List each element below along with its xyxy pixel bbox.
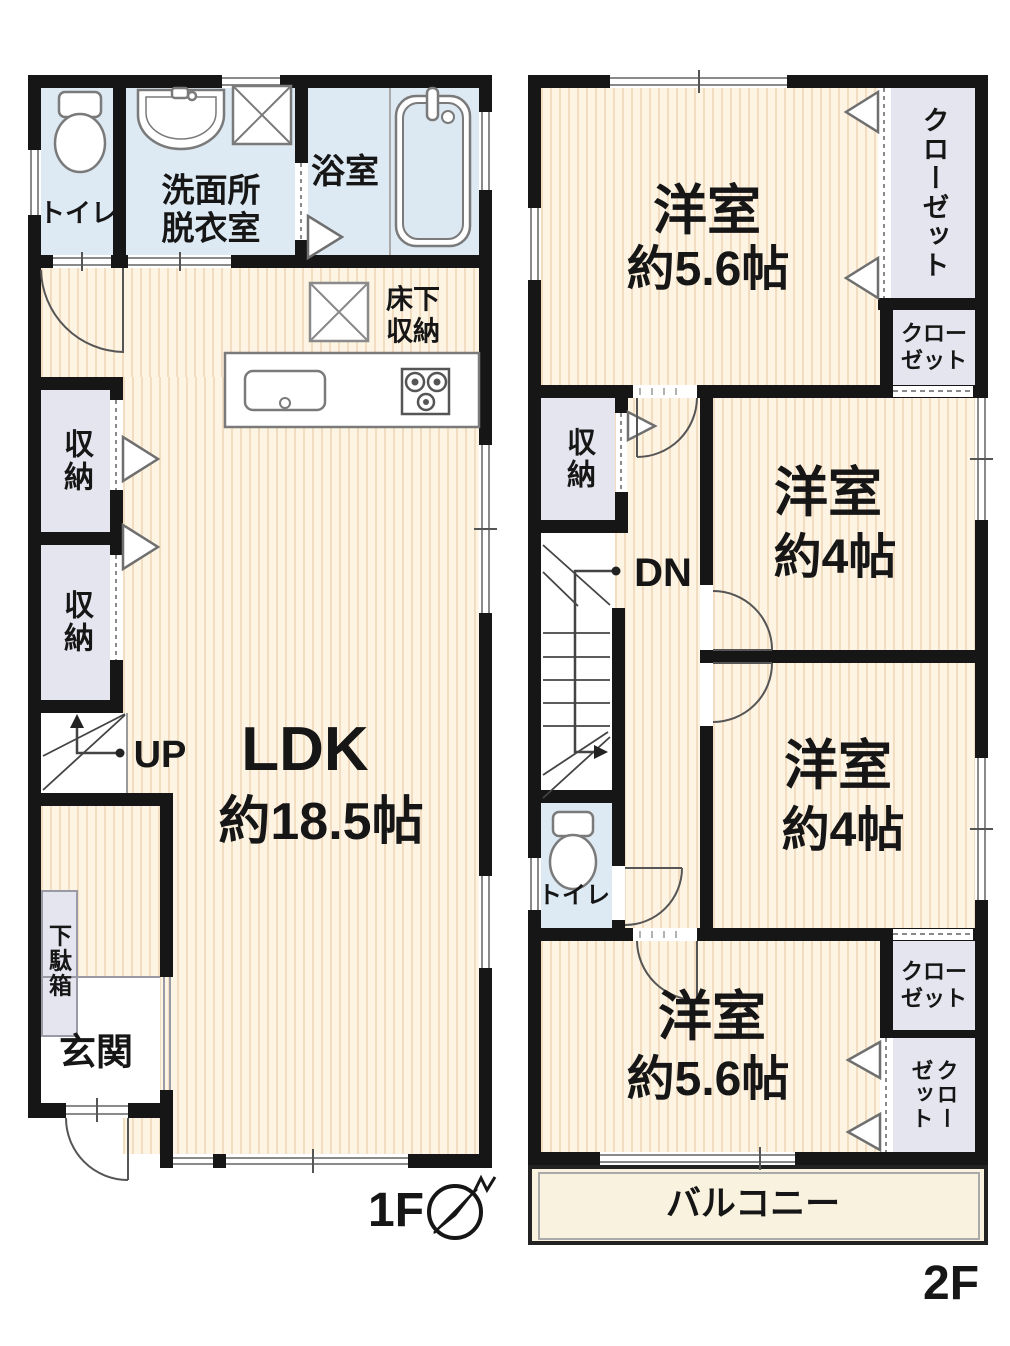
label-1f-ldk1: LDK [241,719,368,781]
label-1f-washroom1: 洗面所 [162,174,261,207]
label-2f-room-top1: 洋室 [653,184,761,238]
window-1f-ldk-right-lower [479,876,492,968]
label-1f-up: UP [134,736,187,774]
closet-door-2f-bot-small [893,929,973,940]
label-2f-room-bottom1: 洋室 [658,990,766,1044]
label-2f-room-bottom2: 約5.6帖 [627,1056,790,1104]
label-2f-closet-vert-col2: ゼット [910,1059,932,1131]
label-2f-closet-top-b: ゼット [901,350,967,372]
label-2f-closet-vert-col1: クロー [935,1059,957,1131]
label-2f-closet-vert: クロー ゼット [910,1059,957,1131]
closet-door-2f-top-small [893,386,973,397]
entrance-door-icon [66,1098,128,1180]
label-2f-dn: DN [634,553,692,593]
label-1f-bath: 浴室 [311,155,379,189]
room-1f-stairs [41,713,127,793]
label-1f-toilet: トイレ [39,200,117,226]
label-2f-room-mid2a: 洋室 [784,739,892,793]
compass-icon [429,1177,495,1238]
label-2f-storage: 収納 [564,427,593,491]
label-1f-underfloor2: 収納 [386,319,440,346]
label-1f-underfloor1: 床下 [386,287,440,314]
window-1f-bottom-small [173,1154,213,1168]
window-1f-top [222,75,280,88]
label-1f-ldk2: 約18.5帖 [218,796,423,848]
label-2f-closet-tall: クローゼット [920,106,947,280]
window-2f-left-top [528,208,541,280]
label-2f-room-mid1a: 洋室 [774,466,882,520]
label-2f-room-mid1b: 約4帖 [774,534,897,582]
label-2f-room-mid2b: 約4帖 [782,807,905,855]
room-2f-hall [615,398,700,928]
label-1f-storage2: 収納 [60,589,90,655]
label-2f-closet-top-a: クロー [901,323,967,345]
label-1f-shoebox: 下駄箱 [47,924,70,999]
room-1f-toilet [41,88,113,255]
floorplan-canvas: トイレ 洗面所 脱衣室 浴室 床下 収納 収納 収納 UP LDK 約18.5帖… [0,0,1010,1346]
label-1f-washroom2: 脱衣室 [162,212,261,245]
room-2f-stairs [541,533,612,790]
label-2f-room-top2: 約5.6帖 [627,246,790,294]
room-2f-toilet [541,803,612,928]
room-2f-mid1 [713,398,975,650]
label-1f-floor: 1F [368,1187,424,1235]
label-2f-closet-bot-b: ゼット [901,988,967,1010]
label-1f-storage1: 収納 [60,428,90,494]
label-2f-toilet: トイレ [538,884,610,908]
label-2f-floor: 2F [923,1260,979,1308]
label-2f-balcony: バルコニー [666,1187,840,1222]
label-2f-closet-bot-a: クロー [901,961,967,983]
label-1f-entrance: 玄関 [59,1034,133,1071]
window-1f-bath-right [479,112,492,190]
